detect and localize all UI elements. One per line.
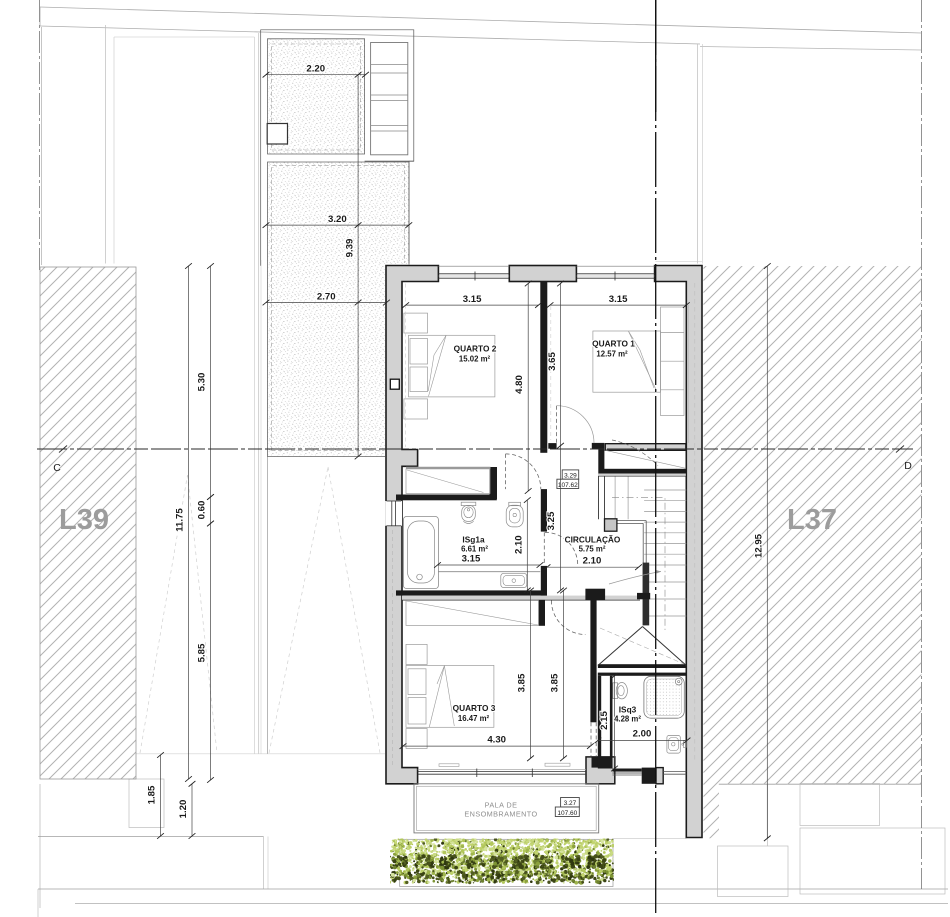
svg-text:5.75 m²: 5.75 m² bbox=[579, 545, 606, 554]
svg-text:4.30: 4.30 bbox=[487, 734, 506, 745]
svg-text:PALA DE: PALA DE bbox=[485, 801, 518, 810]
svg-text:3.20: 3.20 bbox=[328, 214, 347, 225]
svg-text:D: D bbox=[904, 460, 912, 472]
svg-text:16.47 m²: 16.47 m² bbox=[458, 714, 490, 723]
svg-text:15.02 m²: 15.02 m² bbox=[459, 355, 491, 364]
svg-text:3.27: 3.27 bbox=[564, 800, 577, 807]
svg-text:ISg1a: ISg1a bbox=[462, 535, 485, 545]
svg-text:L39: L39 bbox=[59, 504, 109, 536]
svg-text:3.29: 3.29 bbox=[564, 472, 577, 479]
svg-text:ENSOMBRAMENTO: ENSOMBRAMENTO bbox=[464, 810, 537, 819]
svg-text:5.85: 5.85 bbox=[197, 643, 208, 662]
svg-text:ISq3: ISq3 bbox=[619, 705, 637, 715]
svg-text:3.25: 3.25 bbox=[546, 511, 557, 530]
svg-text:2.10: 2.10 bbox=[513, 535, 524, 554]
svg-text:L37: L37 bbox=[787, 504, 837, 536]
svg-text:107.62: 107.62 bbox=[558, 482, 578, 489]
svg-text:12.95: 12.95 bbox=[753, 533, 764, 558]
svg-text:6.61 m²: 6.61 m² bbox=[461, 545, 488, 554]
svg-text:1.20: 1.20 bbox=[178, 800, 189, 819]
svg-text:3.15: 3.15 bbox=[462, 554, 481, 565]
svg-text:3.65: 3.65 bbox=[547, 352, 558, 371]
svg-text:107.60: 107.60 bbox=[557, 810, 577, 817]
svg-text:2.00: 2.00 bbox=[633, 729, 652, 740]
svg-text:QUARTO 2: QUARTO 2 bbox=[454, 344, 497, 354]
svg-text:2.20: 2.20 bbox=[306, 64, 325, 75]
svg-text:3.15: 3.15 bbox=[609, 294, 628, 305]
svg-text:0.60: 0.60 bbox=[197, 501, 208, 520]
svg-text:4.28 m²: 4.28 m² bbox=[614, 715, 641, 724]
svg-text:3.85: 3.85 bbox=[550, 673, 561, 692]
svg-text:C: C bbox=[53, 462, 61, 474]
svg-text:9.39: 9.39 bbox=[345, 239, 356, 258]
svg-text:12.57 m²: 12.57 m² bbox=[596, 350, 628, 359]
svg-text:3.15: 3.15 bbox=[463, 294, 482, 305]
svg-text:CIRCULAÇÃO: CIRCULAÇÃO bbox=[565, 535, 621, 545]
svg-text:11.75: 11.75 bbox=[175, 508, 186, 532]
svg-text:QUARTO 1: QUARTO 1 bbox=[592, 339, 635, 349]
svg-text:2.70: 2.70 bbox=[317, 291, 336, 302]
svg-text:4.80: 4.80 bbox=[514, 375, 525, 394]
svg-text:2.10: 2.10 bbox=[583, 556, 602, 567]
svg-text:5.30: 5.30 bbox=[197, 373, 208, 392]
svg-text:QUARTO 3: QUARTO 3 bbox=[453, 703, 496, 713]
svg-text:2.15: 2.15 bbox=[599, 711, 610, 730]
svg-text:3.85: 3.85 bbox=[517, 673, 528, 692]
svg-text:1.85: 1.85 bbox=[147, 785, 158, 804]
